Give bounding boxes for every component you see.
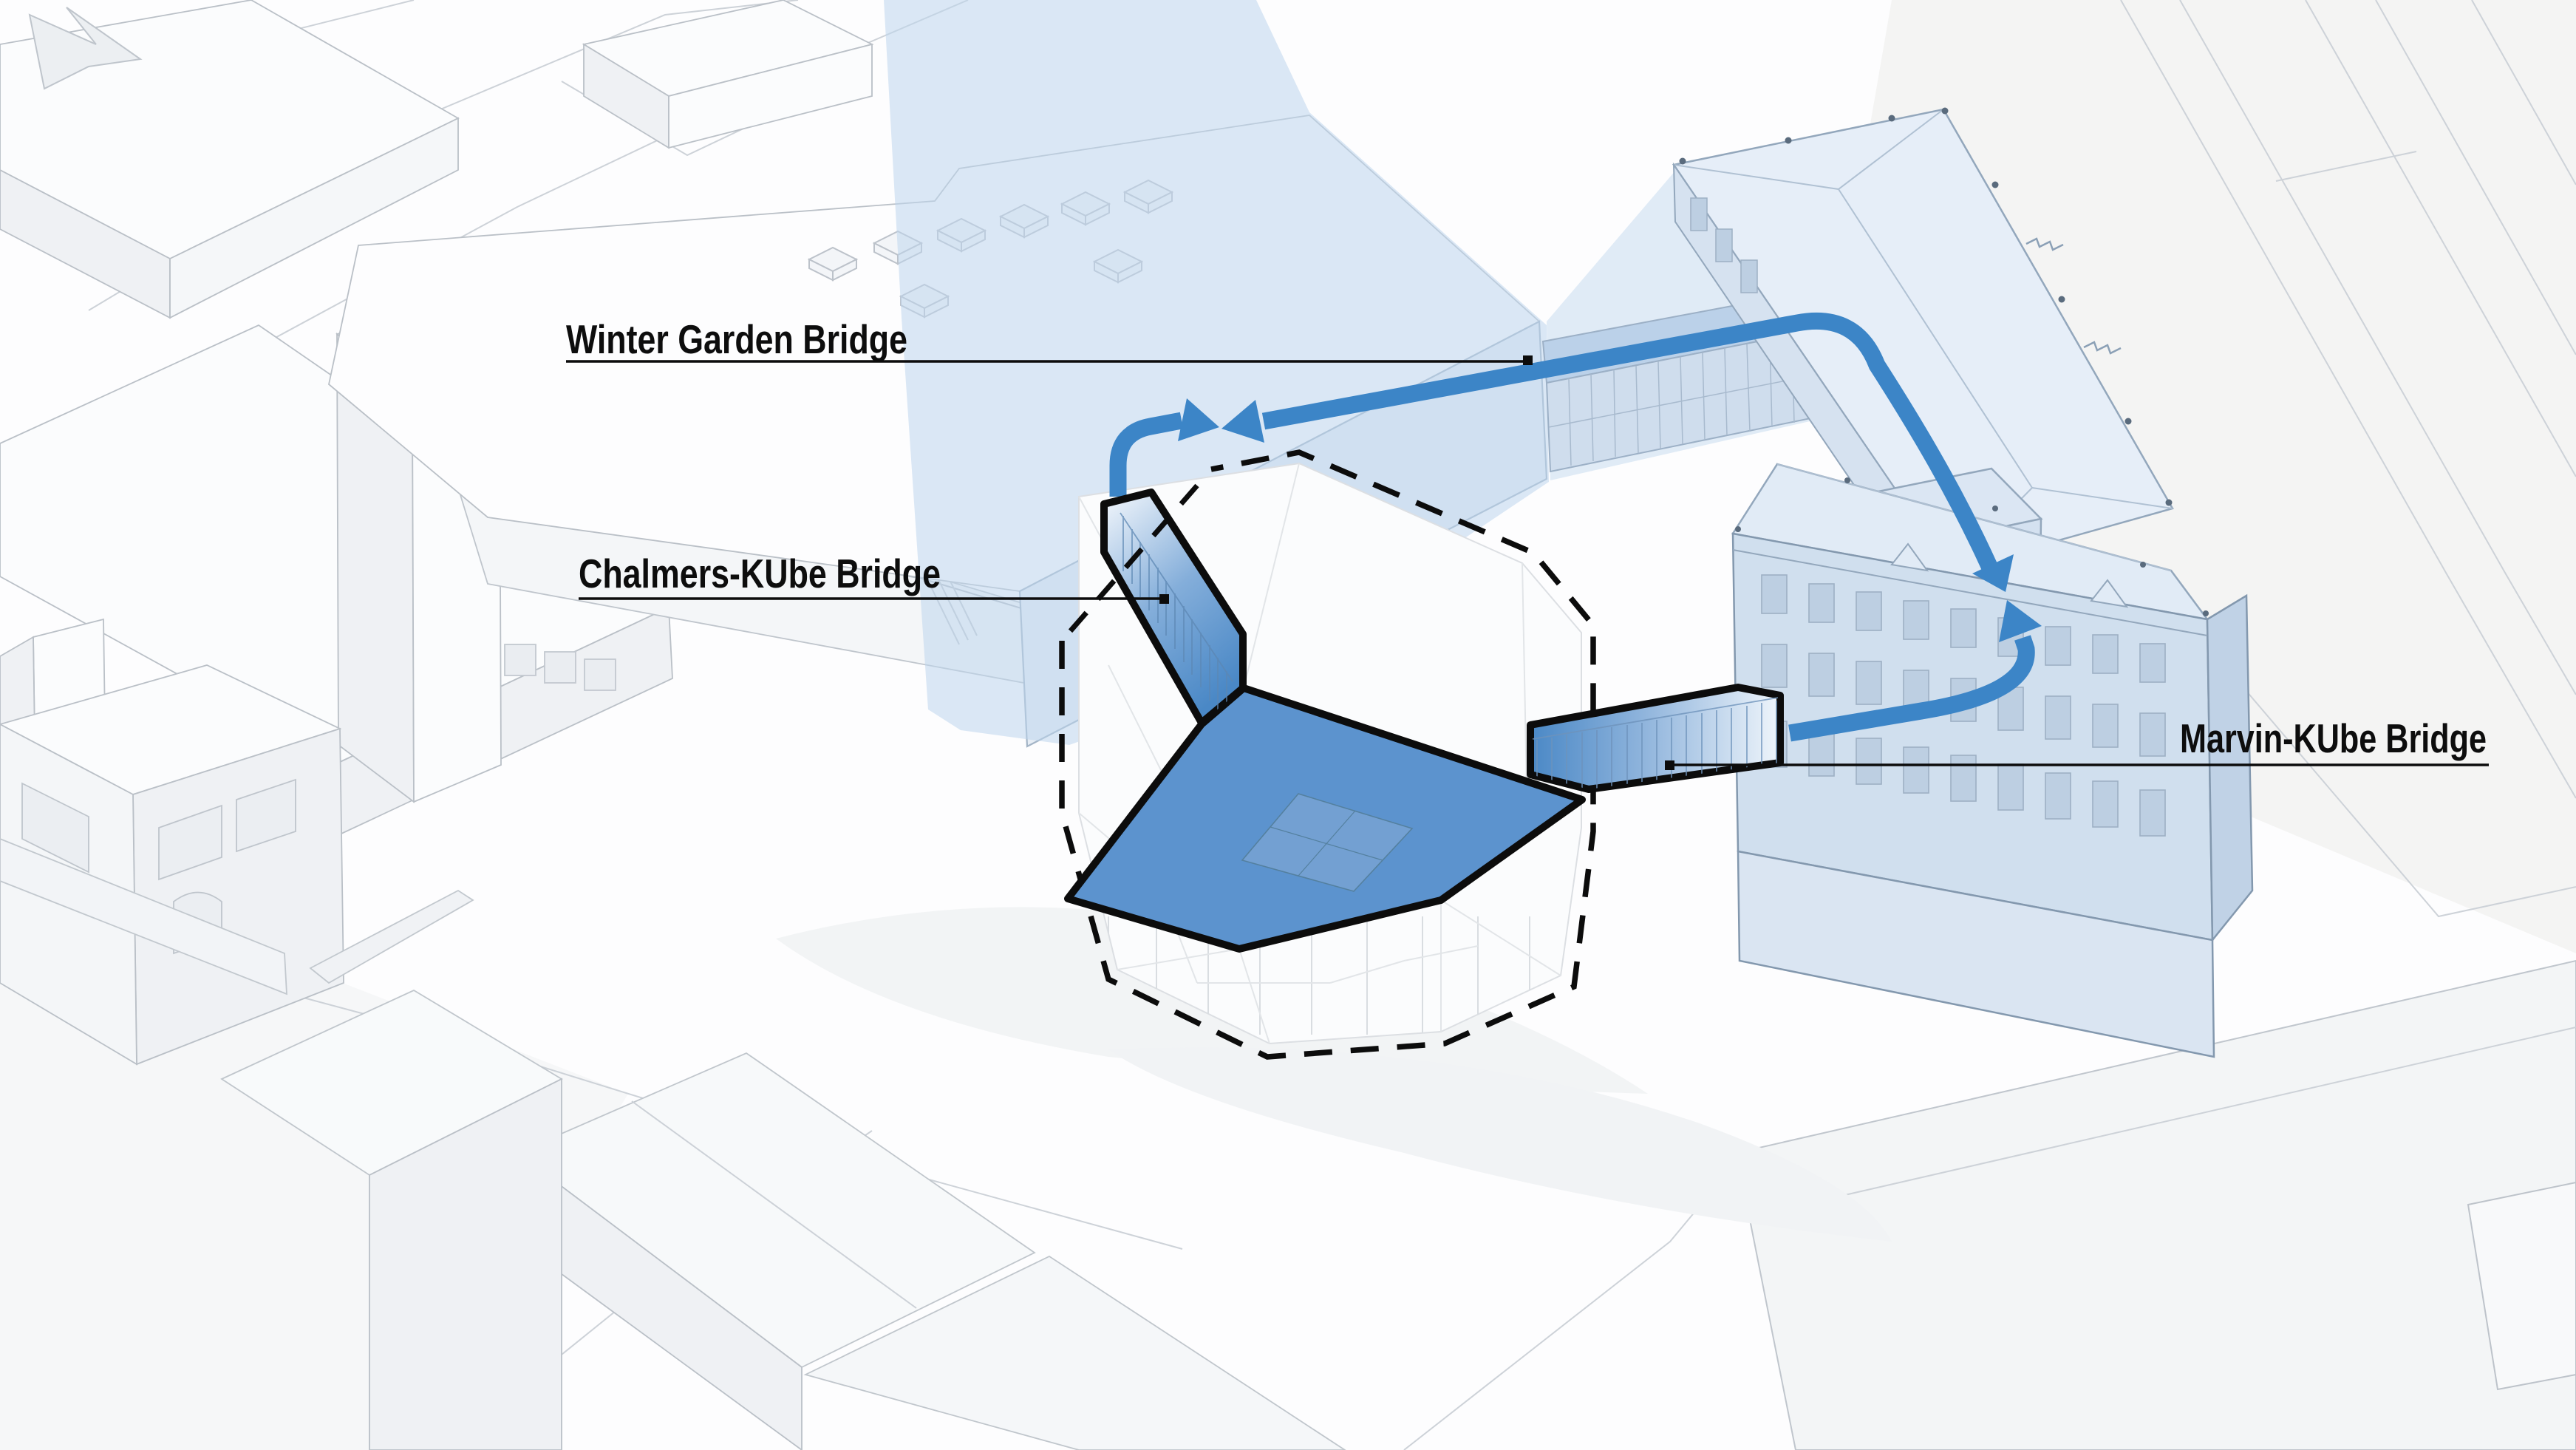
svg-text:Marvin-KUbe Bridge: Marvin-KUbe Bridge [2180,715,2487,761]
svg-text:Chalmers-KUbe Bridge: Chalmers-KUbe Bridge [579,551,941,596]
svg-text:Winter Garden Bridge: Winter Garden Bridge [566,316,907,362]
